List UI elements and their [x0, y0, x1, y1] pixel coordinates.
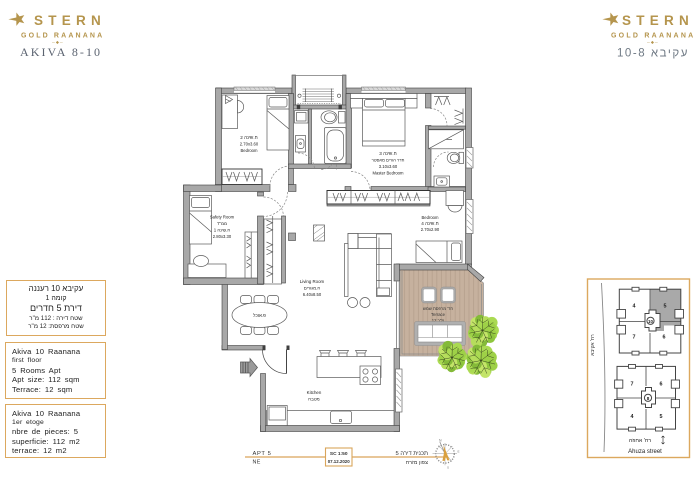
svg-text:2.70x3.60: 2.70x3.60 — [240, 142, 259, 147]
svg-text:ח.שינה 1: ח.שינה 1 — [214, 228, 231, 233]
svg-text:ממ"ד: ממ"ד — [217, 221, 227, 226]
svg-text:פ.אוכל: פ.אוכל — [253, 313, 266, 318]
svg-text:3.10x3.60: 3.10x3.60 — [379, 164, 398, 169]
svg-text:E: E — [458, 450, 460, 454]
svg-text:7: 7 — [633, 335, 636, 341]
svg-text:─◆─: ─◆─ — [51, 40, 64, 45]
svg-text:מטבח: מטבח — [308, 397, 319, 402]
svg-text:07.12.2020: 07.12.2020 — [328, 459, 351, 464]
svg-text:7: 7 — [631, 382, 634, 388]
svg-text:6: 6 — [663, 335, 666, 341]
svg-text:רח' אקיבא: רח' אקיבא — [590, 334, 596, 356]
svg-text:Terrace: Terrace — [431, 312, 446, 317]
svg-text:2.80x3.30: 2.80x3.30 — [213, 234, 232, 239]
svg-text:─◆─: ─◆─ — [646, 40, 659, 45]
svg-text:S: S — [447, 466, 449, 470]
svg-text:Living Room: Living Room — [300, 279, 325, 284]
svg-text:רח' אחוזה: רח' אחוזה — [629, 438, 651, 444]
svg-text:6: 6 — [660, 382, 663, 388]
svg-text:AKIVA 8-10: AKIVA 8-10 — [20, 45, 103, 59]
svg-text:Bedroom: Bedroom — [422, 215, 440, 220]
svg-text:4: 4 — [631, 414, 634, 420]
svg-text:GOLD RAANANA: GOLD RAANANA — [21, 33, 103, 40]
svg-text:STERN: STERN — [34, 13, 103, 28]
svg-text:Kitchen: Kitchen — [307, 390, 322, 395]
svg-text:5: 5 — [660, 414, 663, 420]
svg-text:ח.שינה 4: ח.שינה 4 — [421, 221, 438, 226]
svg-text:8: 8 — [647, 396, 650, 401]
svg-text:N: N — [439, 439, 442, 443]
svg-text:STERN: STERN — [622, 13, 691, 28]
svg-text:ח.שינה 2: ח.שינה 2 — [240, 135, 257, 140]
svg-text:10: 10 — [648, 319, 653, 324]
svg-text:10-8 עקיבא: 10-8 עקיבא — [617, 48, 689, 60]
svg-text:6.40x8.50: 6.40x8.50 — [303, 292, 322, 297]
svg-text:Master Bedroom: Master Bedroom — [373, 171, 404, 176]
svg-text:חד' מרפסת שמש: חד' מרפסת שמש — [423, 306, 454, 311]
svg-text:NE: NE — [253, 460, 261, 466]
svg-text:ח.מגורים: ח.מגורים — [304, 286, 321, 291]
svg-text:צפון מזרח: צפון מזרח — [406, 460, 428, 466]
svg-text:Bedroom: Bedroom — [241, 148, 259, 153]
svg-text:SC 1:50: SC 1:50 — [330, 451, 348, 457]
svg-text:Safety Room: Safety Room — [210, 215, 235, 220]
svg-text:5: 5 — [664, 304, 667, 310]
svg-text:GOLD RAANANA: GOLD RAANANA — [611, 33, 694, 40]
svg-text:ח.שינה 3: ח.שינה 3 — [379, 151, 396, 156]
svg-text:חדר הורים מאסטר: חדר הורים מאסטר — [372, 158, 405, 163]
svg-text:תכנית דירה 5: תכנית דירה 5 — [396, 451, 428, 457]
svg-text:2.70x2.90: 2.70x2.90 — [421, 227, 440, 232]
svg-text:Ahuza street: Ahuza street — [628, 449, 662, 455]
svg-text:APT 5: APT 5 — [253, 451, 272, 457]
svg-text:4: 4 — [633, 304, 636, 310]
